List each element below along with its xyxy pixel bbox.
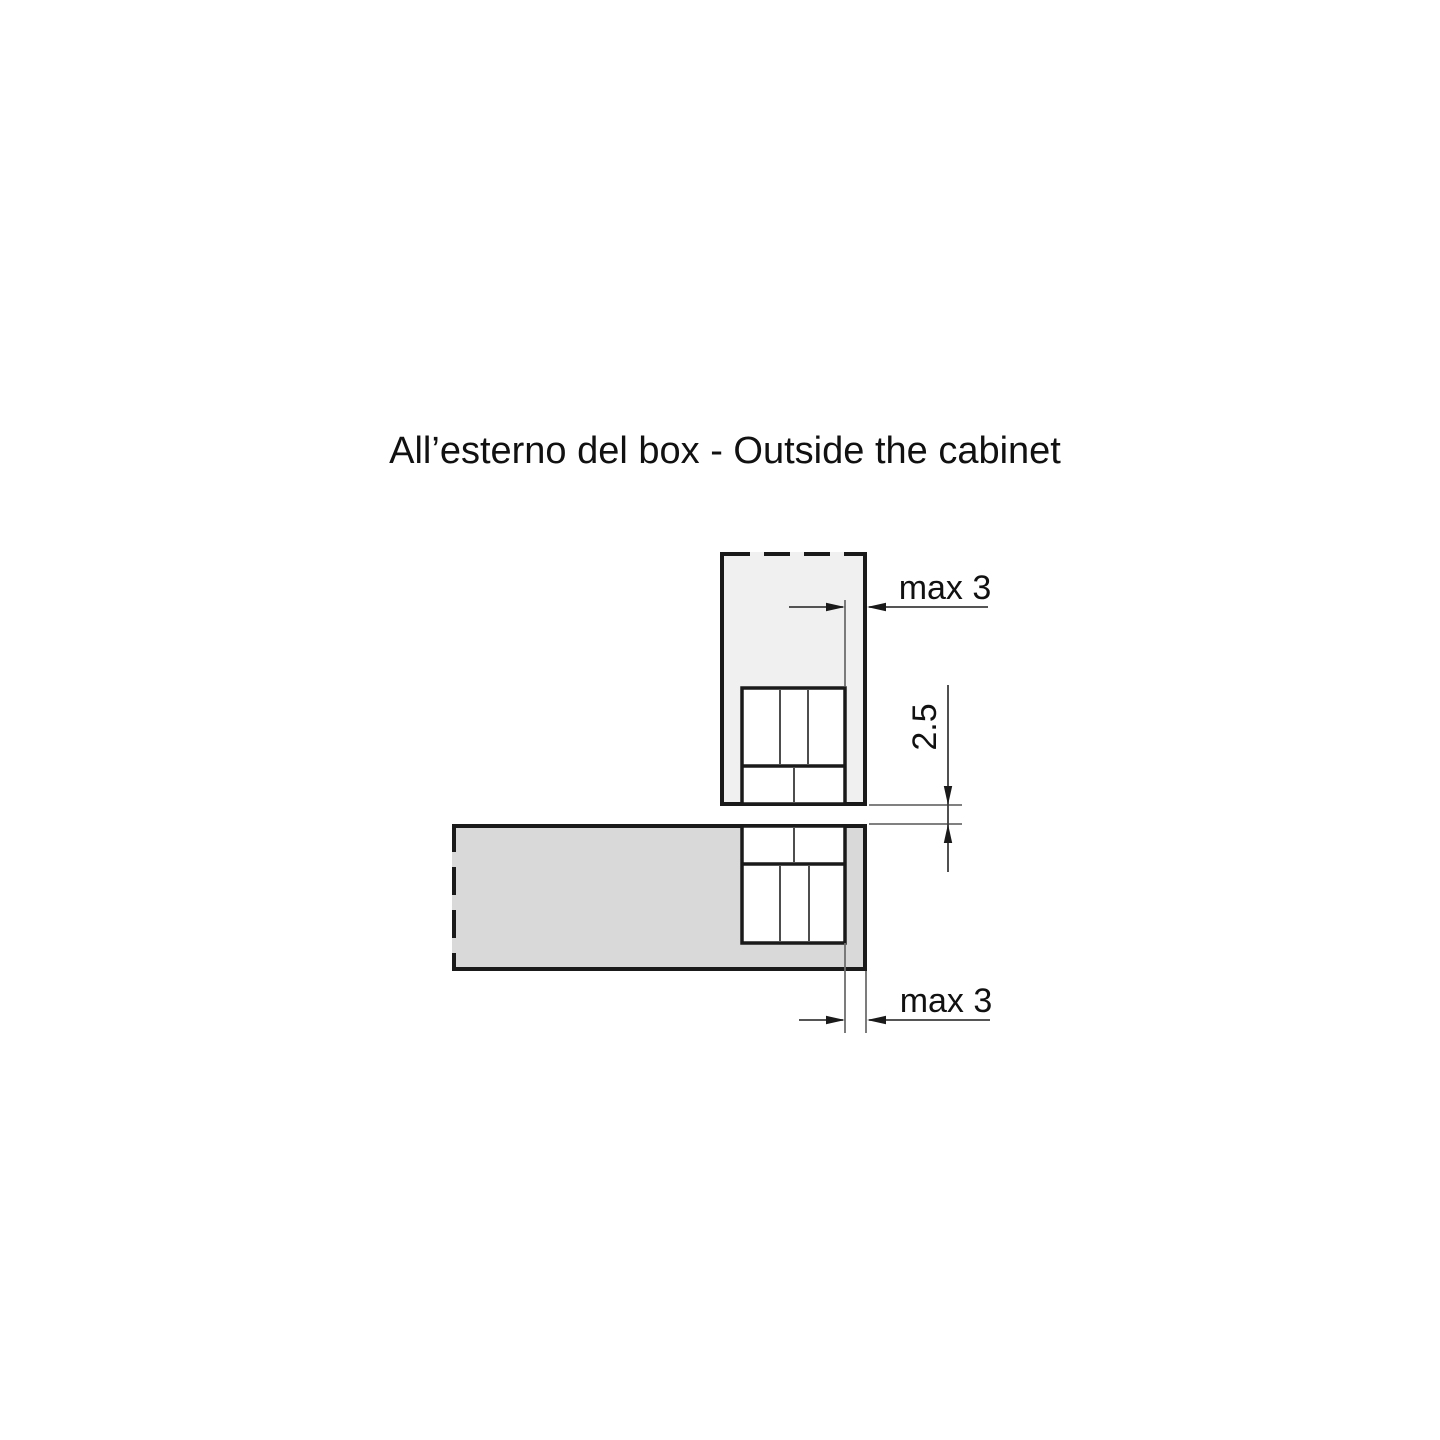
bottom-gap-arrow-left-icon	[867, 1016, 886, 1024]
bottom-gap-arrow-right-icon	[826, 1016, 845, 1024]
hinge-cross-section-diagram: max 3 2.5 max 3	[0, 0, 1440, 1440]
reveal-gap-label: 2.5	[906, 703, 944, 750]
top-gap-label: max 3	[899, 569, 992, 607]
reveal-arrow-up-icon	[944, 824, 952, 843]
cabinet-hinge-body	[742, 826, 845, 943]
technical-drawing-page: All’esterno del box - Outside the cabine…	[0, 0, 1440, 1440]
bottom-gap-label: max 3	[900, 982, 993, 1020]
top-gap-arrow-left-icon	[867, 603, 886, 611]
dimension-reveal-gap: 2.5	[869, 685, 962, 872]
reveal-arrow-down-icon	[944, 786, 952, 805]
door-hinge-body	[742, 688, 845, 804]
